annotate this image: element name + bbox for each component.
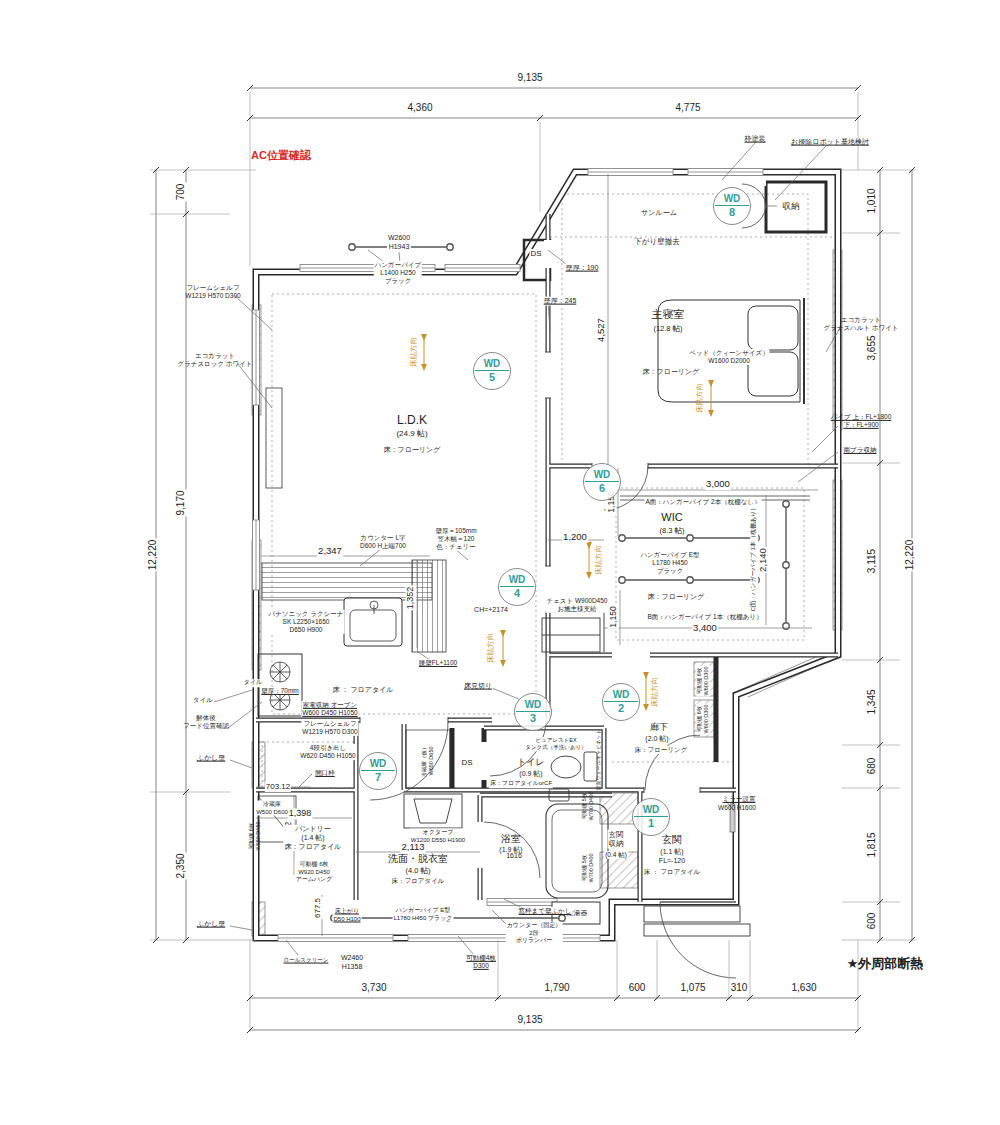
mirror xyxy=(730,804,735,832)
bathtub xyxy=(546,804,608,898)
porch-steps xyxy=(644,906,750,936)
washer-nook xyxy=(406,730,450,788)
dimension-lines xyxy=(150,85,916,1033)
interior-walls xyxy=(256,182,838,902)
kitchen-counter xyxy=(258,560,446,716)
stove-burners xyxy=(270,662,290,710)
bed xyxy=(658,298,804,404)
floor-plan-canvas: AC位置確認★外周部断熱9,1354,3604,7753,7301,790600… xyxy=(0,0,1000,1125)
floor-plan-linework xyxy=(0,0,1000,1125)
windows xyxy=(253,169,764,942)
vanity xyxy=(404,794,462,828)
chest xyxy=(542,618,600,652)
fridge xyxy=(258,796,296,842)
fixtures xyxy=(258,298,804,936)
